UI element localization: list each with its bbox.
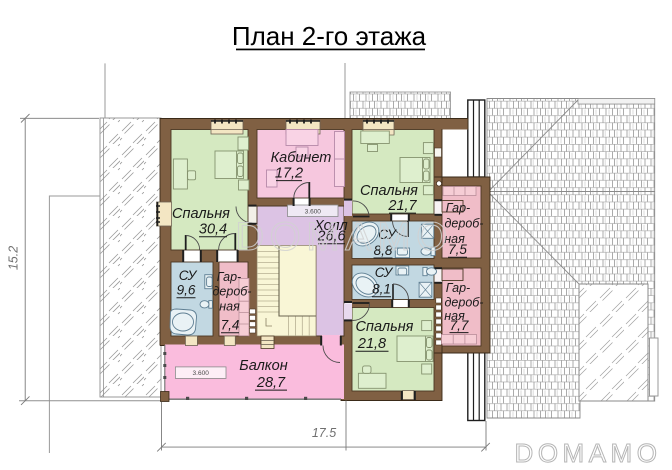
svg-text:8,1: 8,1 [372,282,391,297]
svg-text:дероб-: дероб- [445,296,484,310]
svg-text:Спальня: Спальня [360,183,418,199]
svg-text:17.5: 17.5 [312,426,336,440]
svg-text:30,4: 30,4 [199,222,227,238]
svg-text:9,6: 9,6 [177,283,196,298]
svg-text:Спальня: Спальня [356,319,414,335]
svg-text:21,7: 21,7 [387,198,417,214]
svg-text:Кабинет: Кабинет [271,150,332,166]
svg-text:DOMAMO: DOMAMO [515,438,662,468]
svg-text:21,8: 21,8 [357,336,386,352]
svg-text:7,7: 7,7 [450,318,469,333]
svg-text:Гар-: Гар- [446,201,470,215]
svg-text:15.2: 15.2 [7,246,21,270]
svg-text:7,4: 7,4 [221,318,240,333]
svg-text:СУ: СУ [375,265,394,280]
svg-text:DOMAMO: DOMAMO [235,215,452,259]
svg-text:Спальня: Спальня [172,206,230,222]
svg-text:28,7: 28,7 [256,375,286,391]
svg-text:Балкон: Балкон [239,358,287,374]
svg-text:ная: ная [219,300,240,314]
svg-text:3.600: 3.600 [193,370,210,377]
svg-text:План 2-го этажа: План 2-го этажа [232,21,427,51]
svg-text:дероб-: дероб- [213,285,252,299]
svg-text:Гар-: Гар- [446,281,470,295]
svg-text:17,2: 17,2 [275,165,303,181]
svg-text:СУ: СУ [179,268,198,283]
svg-text:Гар-: Гар- [217,270,241,284]
